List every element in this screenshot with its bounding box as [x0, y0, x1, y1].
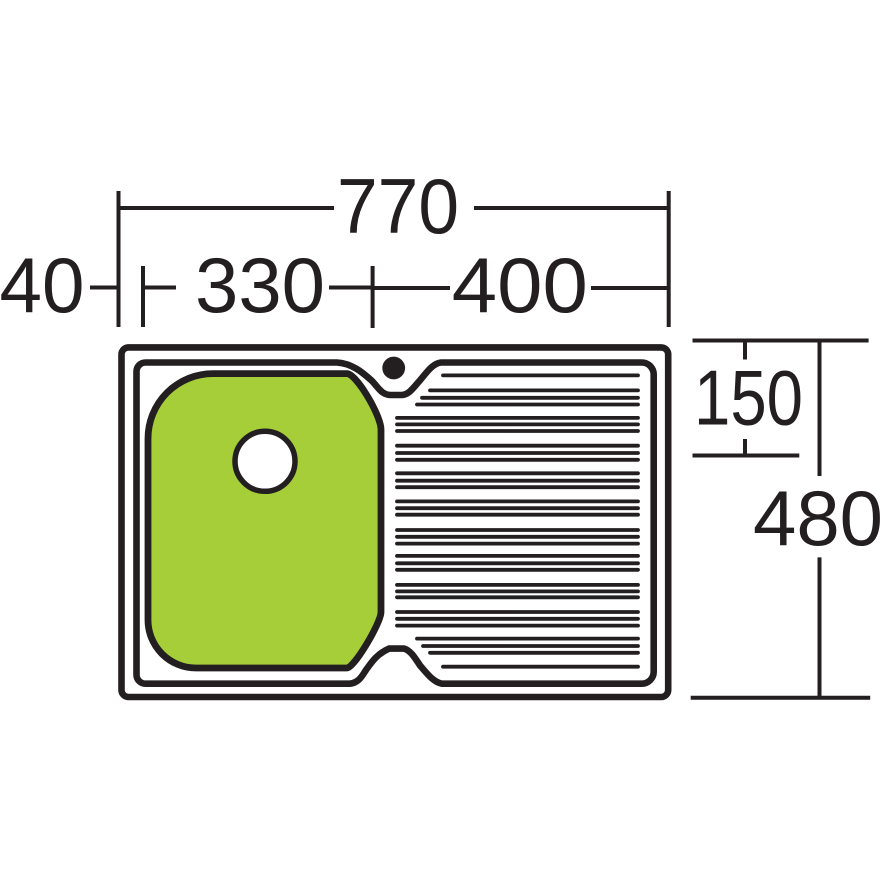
svg-text:770: 770 [337, 162, 459, 250]
svg-text:40: 40 [0, 241, 85, 329]
svg-text:480: 480 [753, 474, 880, 562]
svg-text:400: 400 [452, 241, 588, 329]
svg-text:150: 150 [694, 354, 803, 442]
svg-text:330: 330 [195, 241, 325, 329]
